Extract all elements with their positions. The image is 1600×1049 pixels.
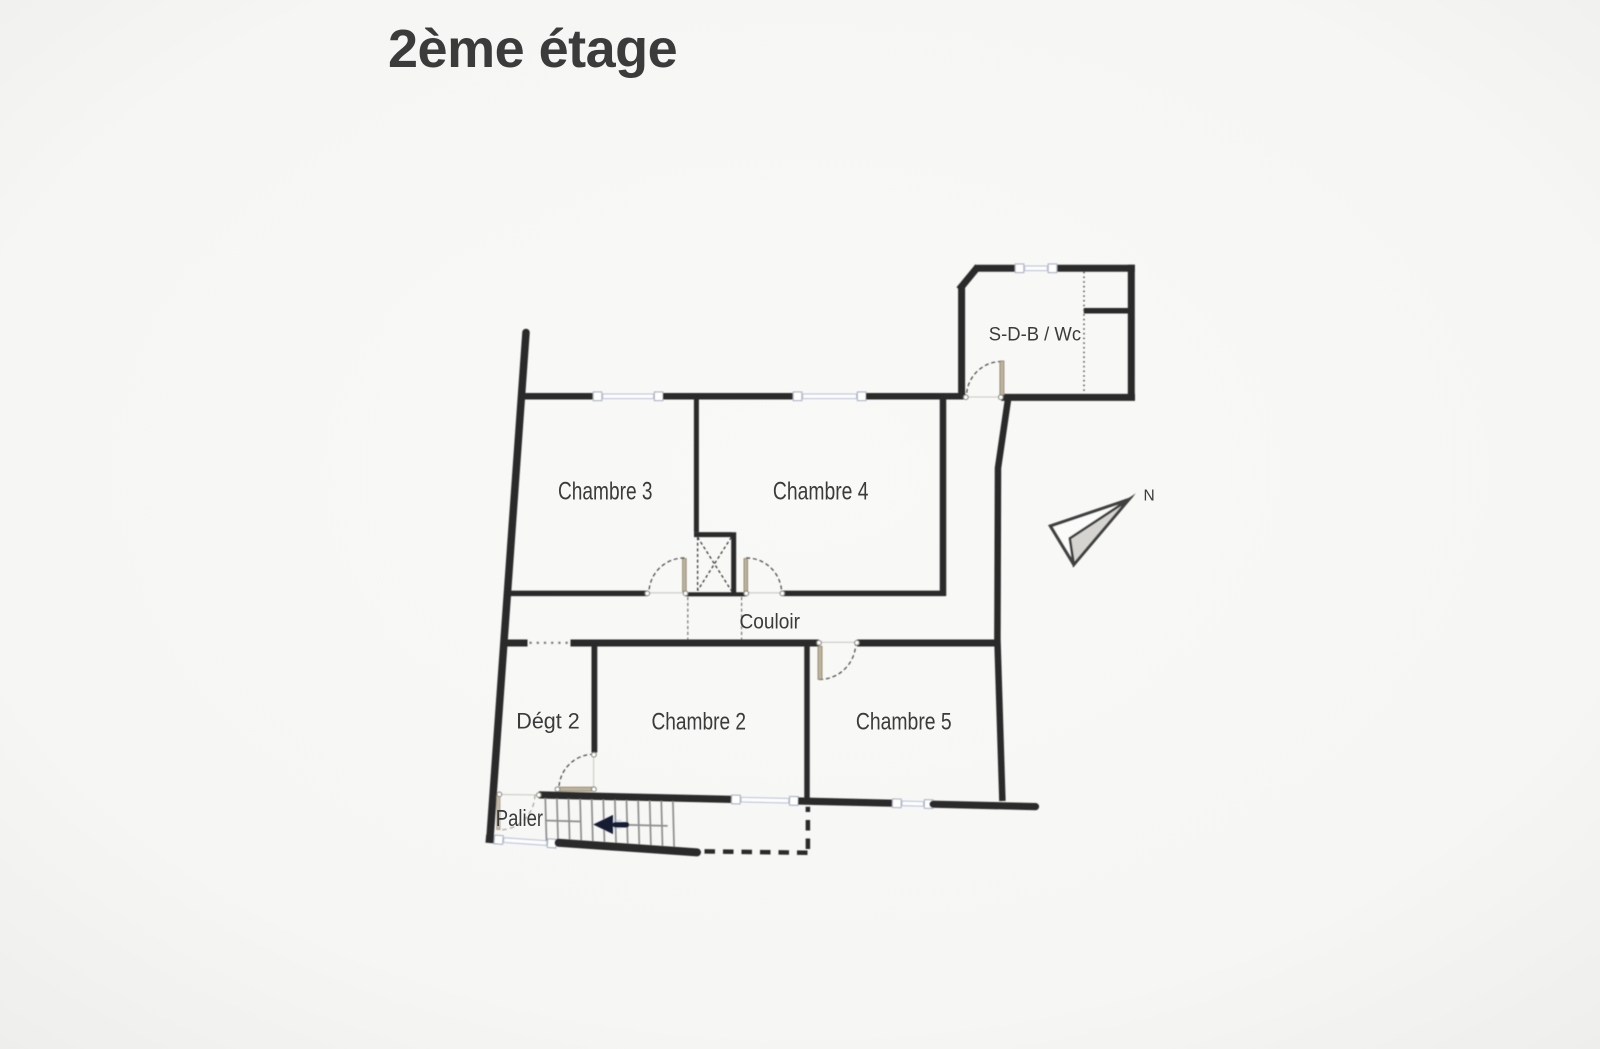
svg-text:Chambre 4: Chambre 4 [773,477,869,505]
svg-text:2ème étage: 2ème étage [388,19,677,79]
svg-text:S-D-B / Wc: S-D-B / Wc [989,323,1082,345]
svg-text:Couloir: Couloir [740,610,801,633]
svg-text:Chambre 5: Chambre 5 [856,709,952,736]
svg-text:Chambre 3: Chambre 3 [558,477,653,505]
svg-text:Palier: Palier [496,805,543,831]
svg-text:Dégt 2: Dégt 2 [516,709,579,734]
svg-text:Chambre 2: Chambre 2 [652,709,747,736]
svg-text:N: N [1144,488,1155,505]
